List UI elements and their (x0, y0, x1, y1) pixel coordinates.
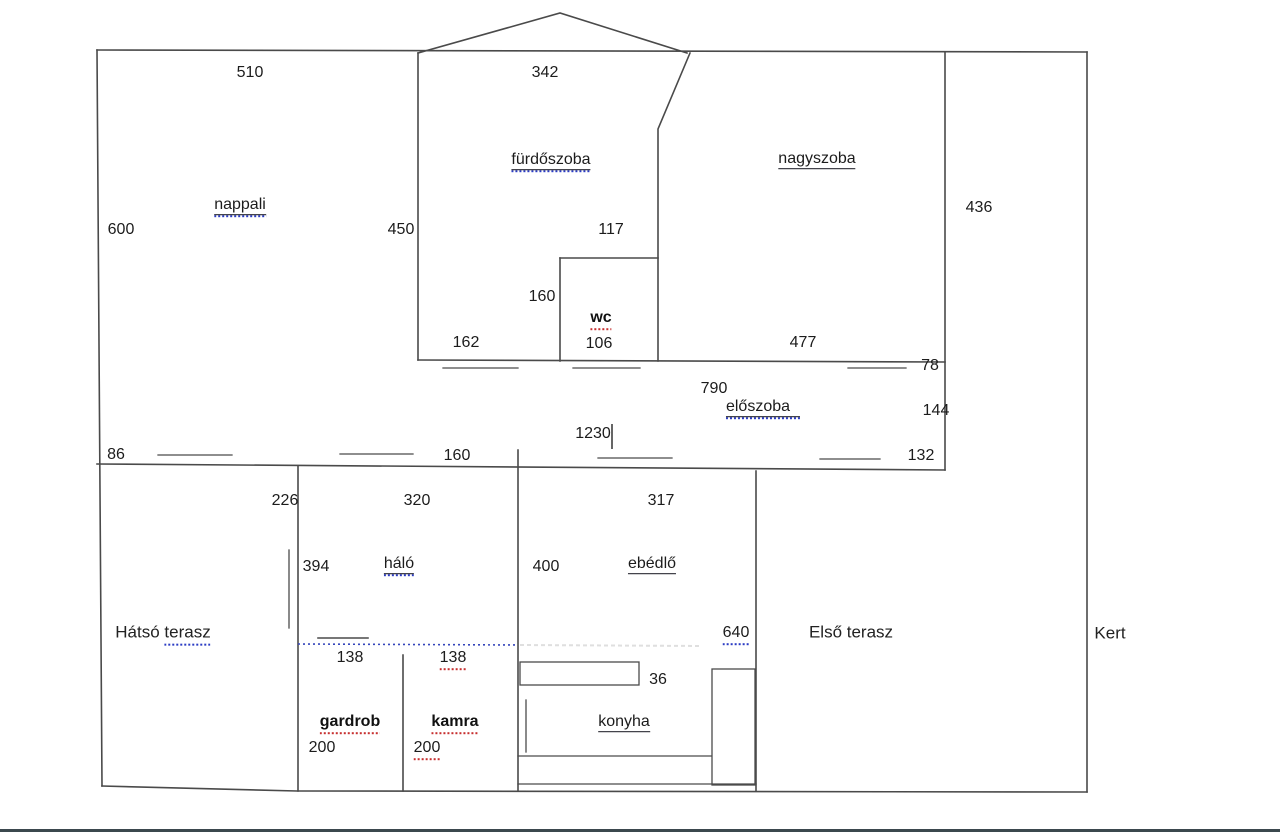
dim-gardrob-left: 200 (309, 739, 336, 757)
room-label-konyha: konyha (598, 713, 650, 731)
dim-ebedlo-bottom: 640 (723, 624, 750, 642)
wall-section-bottom (97, 464, 945, 470)
page-separator-line (0, 829, 1280, 832)
dim-eloszoba-bottom-right: 132 (908, 447, 935, 465)
wall-left-outer (97, 50, 102, 786)
wall-furdoszoba-right-slant (658, 53, 690, 361)
area-label-hatso-terasz: Hátsó terasz (115, 624, 210, 643)
dim-eloszoba-right-top: 78 (921, 357, 939, 375)
room-label-halo: háló (384, 555, 414, 573)
room-label-kamra: kamra (431, 713, 478, 731)
area-label-kert: Kert (1094, 625, 1125, 644)
room-label-nappali: nappali (214, 196, 266, 214)
kitchen-cabinet-tall (712, 669, 755, 785)
dim-wc-bottom: 106 (586, 335, 613, 353)
kitchen-counter (520, 662, 639, 685)
dim-furdoszoba-left: 450 (388, 221, 415, 239)
room-label-nagyszoba: nagyszoba (778, 150, 855, 168)
dim-hatso-window: 86 (107, 446, 125, 464)
wall-mid-horizontal (418, 360, 945, 362)
dim-ebedlo-left: 400 (533, 558, 560, 576)
wall-bottom-outer (102, 786, 1087, 792)
dim-nagyszoba-right: 436 (966, 199, 993, 217)
dotted-partition-blue (298, 644, 518, 645)
dim-kamra-left: 200 (414, 739, 441, 757)
area-label-elso-terasz: Első terasz (809, 624, 893, 643)
dim-halo-top: 320 (404, 492, 431, 510)
dim-nagyszoba-bottom: 477 (790, 334, 817, 352)
dim-kamra-top: 138 (440, 649, 467, 667)
dim-furdoszoba-top: 342 (532, 64, 559, 82)
dim-counter-depth: 36 (649, 671, 667, 689)
roof-line (418, 13, 687, 53)
dim-house-width: 1230 (575, 425, 611, 443)
room-label-furdoszoba: fürdőszoba (511, 151, 590, 169)
dim-ebedlo-top: 317 (648, 492, 675, 510)
dim-nappali-left: 600 (108, 221, 135, 239)
dim-halo-left: 394 (303, 558, 330, 576)
dim-wc-top: 117 (598, 221, 624, 239)
room-label-eloszoba: előszoba (726, 398, 800, 416)
room-label-wc: wc (590, 309, 611, 327)
dim-wc-left: 160 (529, 288, 556, 306)
dim-nappali-top: 510 (237, 64, 264, 82)
floor-plan-page: nappali fürdőszoba nagyszoba wc előszoba… (0, 0, 1280, 838)
room-label-gardrob: gardrob (320, 713, 380, 731)
wall-top (97, 50, 1087, 52)
dim-corridor-window: 160 (444, 447, 471, 465)
faded-partition (520, 645, 700, 646)
dim-eloszoba-right: 144 (923, 402, 950, 420)
dim-gardrob-top: 138 (337, 649, 364, 667)
dim-under-furdoszoba: 162 (453, 334, 480, 352)
dim-eloszoba-width: 790 (701, 380, 728, 398)
dim-hatso-top: 226 (272, 492, 299, 510)
room-label-ebedlo: ebédlő (628, 555, 676, 573)
